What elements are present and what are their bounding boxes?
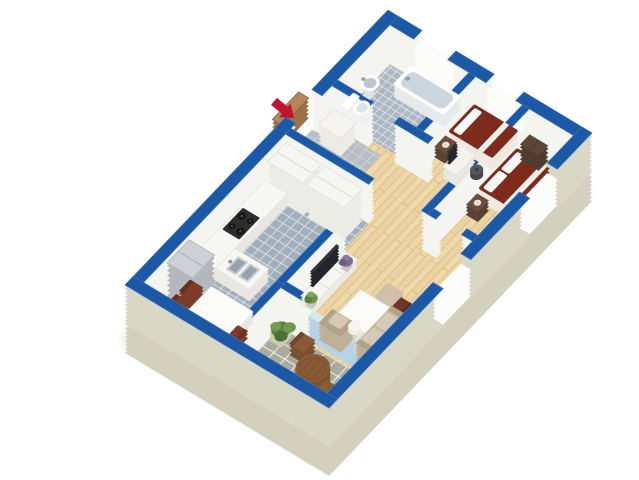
apartment bbox=[77, 6, 634, 476]
floor-plan-canvas bbox=[0, 0, 639, 480]
floor-plan-3d bbox=[0, 0, 639, 480]
